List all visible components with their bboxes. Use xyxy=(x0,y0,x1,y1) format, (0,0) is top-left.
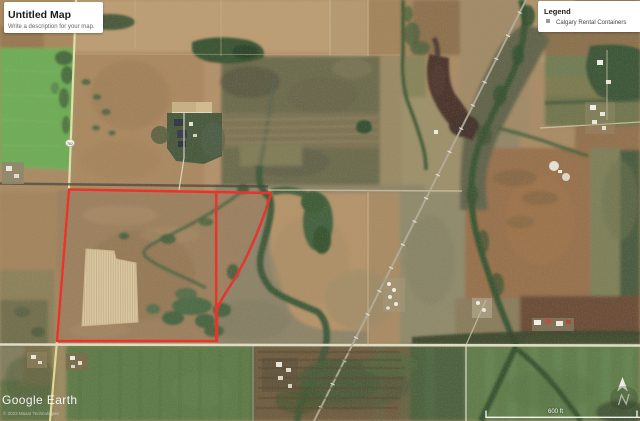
svg-text:762: 762 xyxy=(67,142,73,146)
